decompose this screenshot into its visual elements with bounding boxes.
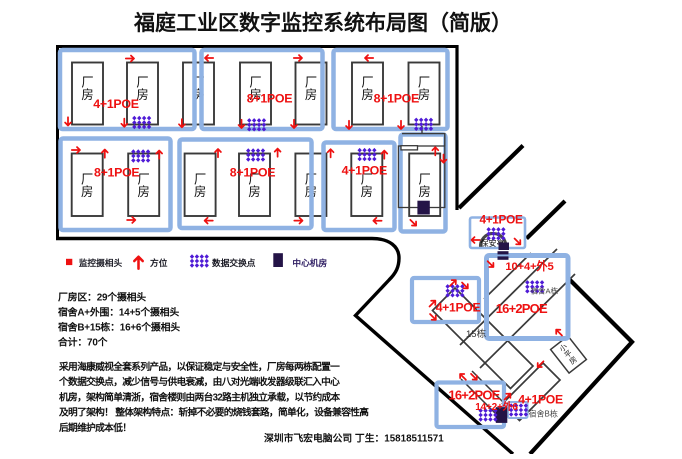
svg-text:房: 房 (305, 87, 317, 102)
svg-text:8+1POE: 8+1POE (94, 166, 139, 180)
svg-text:16+2POE: 16+2POE (448, 387, 500, 402)
svg-text:宿舍A栋: 宿舍A栋 (531, 286, 559, 296)
svg-text:合计：70个: 合计：70个 (57, 336, 108, 349)
svg-text:4+1POE: 4+1POE (342, 164, 387, 178)
svg-text:房: 房 (81, 87, 93, 102)
svg-text:房: 房 (194, 184, 206, 199)
svg-text:采用海康威视全套系列产品，以保证稳定与安全性，厂房每两栋配置: 采用海康威视全套系列产品，以保证稳定与安全性，厂房每两栋配置一 (58, 360, 340, 373)
svg-text:深圳市飞宏电脑公司 丁生：15818511571: 深圳市飞宏电脑公司 丁生：15818511571 (264, 432, 444, 445)
svg-text:数据交换点: 数据交换点 (212, 257, 256, 268)
svg-text:房: 房 (361, 87, 373, 102)
svg-text:后期维护成本低！: 后期维护成本低！ (59, 421, 131, 434)
svg-text:福庭工业区数字监控系统布局图（简版）: 福庭工业区数字监控系统布局图（简版） (133, 11, 512, 35)
svg-text:4+1POE: 4+1POE (93, 97, 138, 111)
svg-text:及明了架构！ 整体架构特点：斩掉不必要的烧钱套路，简单化，: 及明了架构！ 整体架构特点：斩掉不必要的烧钱套路，简单化，设备兼容性高 (59, 406, 369, 419)
svg-text:15栋: 15栋 (466, 328, 487, 340)
svg-text:房: 房 (361, 184, 373, 199)
svg-text:房: 房 (419, 184, 431, 199)
svg-text:10+4+外5: 10+4+外5 (505, 259, 553, 273)
svg-text:中心机房: 中心机房 (292, 257, 327, 268)
svg-text:8+1POE: 8+1POE (247, 92, 292, 106)
svg-text:监控摄相头: 监控摄相头 (79, 257, 123, 268)
svg-text:方位: 方位 (150, 257, 168, 268)
svg-text:宿舍B+15栋：16+6个摄相头: 宿舍B+15栋：16+6个摄相头 (58, 321, 180, 334)
svg-text:8+1POE: 8+1POE (374, 92, 419, 106)
svg-text:14+2+外6: 14+2+外6 (475, 400, 518, 413)
svg-text:机房，架构简单清浙，宿舍楼则由两台32路主机独立承载，以节约: 机房，架构简单清浙，宿舍楼则由两台32路主机独立承载，以节约成本 (59, 390, 341, 403)
svg-text:厂房区：29个摄相头: 厂房区：29个摄相头 (58, 291, 146, 304)
svg-text:4+1POE: 4+1POE (436, 300, 481, 314)
svg-text:个数据交换点，减少信号与供电衰减，由八对光端收发器级联汇入中: 个数据交换点，减少信号与供电衰减，由八对光端收发器级联汇入中心 (58, 375, 340, 388)
svg-text:4+1POE: 4+1POE (479, 212, 523, 226)
svg-text:房: 房 (248, 184, 260, 199)
svg-text:8+1POE: 8+1POE (230, 166, 275, 180)
svg-text:宿舍A+外围：14+5个摄相头: 宿舍A+外围：14+5个摄相头 (58, 306, 179, 319)
svg-text:房: 房 (418, 87, 430, 102)
svg-text:房: 房 (81, 184, 93, 199)
svg-text:房: 房 (138, 184, 150, 199)
svg-text:4+1POE: 4+1POE (518, 392, 563, 406)
svg-text:宿舍B栋: 宿舍B栋 (529, 409, 558, 419)
svg-text:16+2POE: 16+2POE (496, 301, 548, 316)
